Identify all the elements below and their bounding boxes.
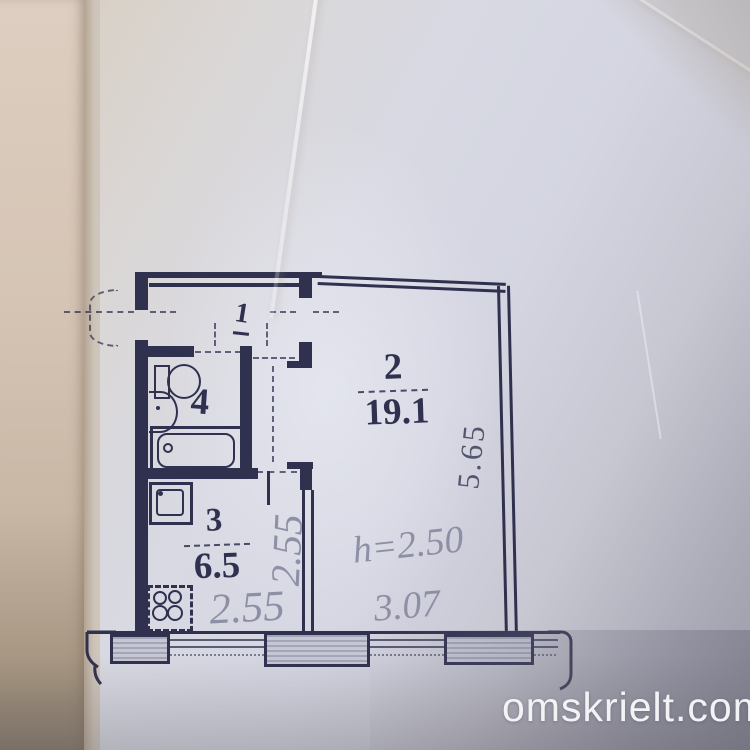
floor-plan-photo: 1 2 19.1 3 6.5 4 5.65 2.55 2.55 h=2.50 3… — [0, 0, 750, 750]
opening-plane-dash — [272, 366, 274, 462]
facade-left-hook — [76, 628, 118, 686]
wall-hallway-top-inner — [149, 283, 299, 287]
stove-burner-2 — [168, 590, 182, 604]
hallway-label-dash — [233, 331, 249, 335]
dim-kitchen-width: 2.55 — [208, 585, 285, 632]
wall-top-left — [135, 272, 322, 278]
bathroom-door-dash — [195, 351, 241, 353]
entrance-opening-dashes — [64, 311, 134, 313]
wall-pillar-hallway — [299, 272, 312, 298]
bathroom-label: 4 — [189, 383, 210, 421]
kitchen-area: 6.5 — [193, 547, 241, 586]
hallway-dash-1 — [150, 311, 176, 313]
hallway-label: 1 — [233, 299, 251, 329]
kitchen-door-leaf — [267, 471, 270, 505]
stove-burner-4 — [167, 605, 183, 621]
wall-divider-right-line — [311, 490, 314, 631]
wall-stub-upper-foot — [287, 361, 301, 368]
corner-sink-drain — [156, 406, 160, 410]
dim-kitchen-depth: 2.55 — [265, 513, 310, 587]
bathtub-drain — [163, 443, 173, 453]
stove-burner-3 — [152, 605, 168, 621]
living-room-label: 2 — [383, 348, 403, 386]
dim-ceiling-height: h=2.50 — [351, 520, 466, 569]
dim-living-room-side: 5.65 — [452, 421, 490, 490]
wall-stub-lower — [300, 462, 312, 490]
stove-burner-1 — [153, 591, 167, 605]
dim-living-room-width: 3.07 — [372, 584, 442, 628]
closet-divider-2 — [266, 323, 268, 346]
kitchen-label: 3 — [205, 504, 223, 538]
wall-left-upper — [135, 272, 148, 310]
kitchen-sink-faucet — [158, 491, 163, 496]
room2-door-dash — [313, 311, 339, 313]
corridor-opening-dash — [253, 357, 295, 359]
wall-right-double — [497, 286, 518, 634]
facade-right-hook — [546, 628, 582, 692]
closet-divider-1 — [214, 323, 216, 346]
floor-plan: 1 2 19.1 3 6.5 4 5.65 2.55 2.55 h=2.50 3… — [0, 0, 750, 750]
wall-hallway-bottom-a — [135, 346, 194, 357]
window-opening-right — [444, 634, 534, 665]
window-opening-middle — [264, 632, 370, 667]
kitchen-door-dash — [257, 471, 297, 473]
wall-top-right-double — [317, 275, 505, 295]
watermark: omskrielt.com — [502, 684, 750, 731]
living-room-area: 19.1 — [364, 392, 430, 431]
window-opening-left — [110, 634, 170, 664]
entrance-door-arc — [89, 289, 118, 347]
hallway-dash-2 — [270, 311, 296, 313]
